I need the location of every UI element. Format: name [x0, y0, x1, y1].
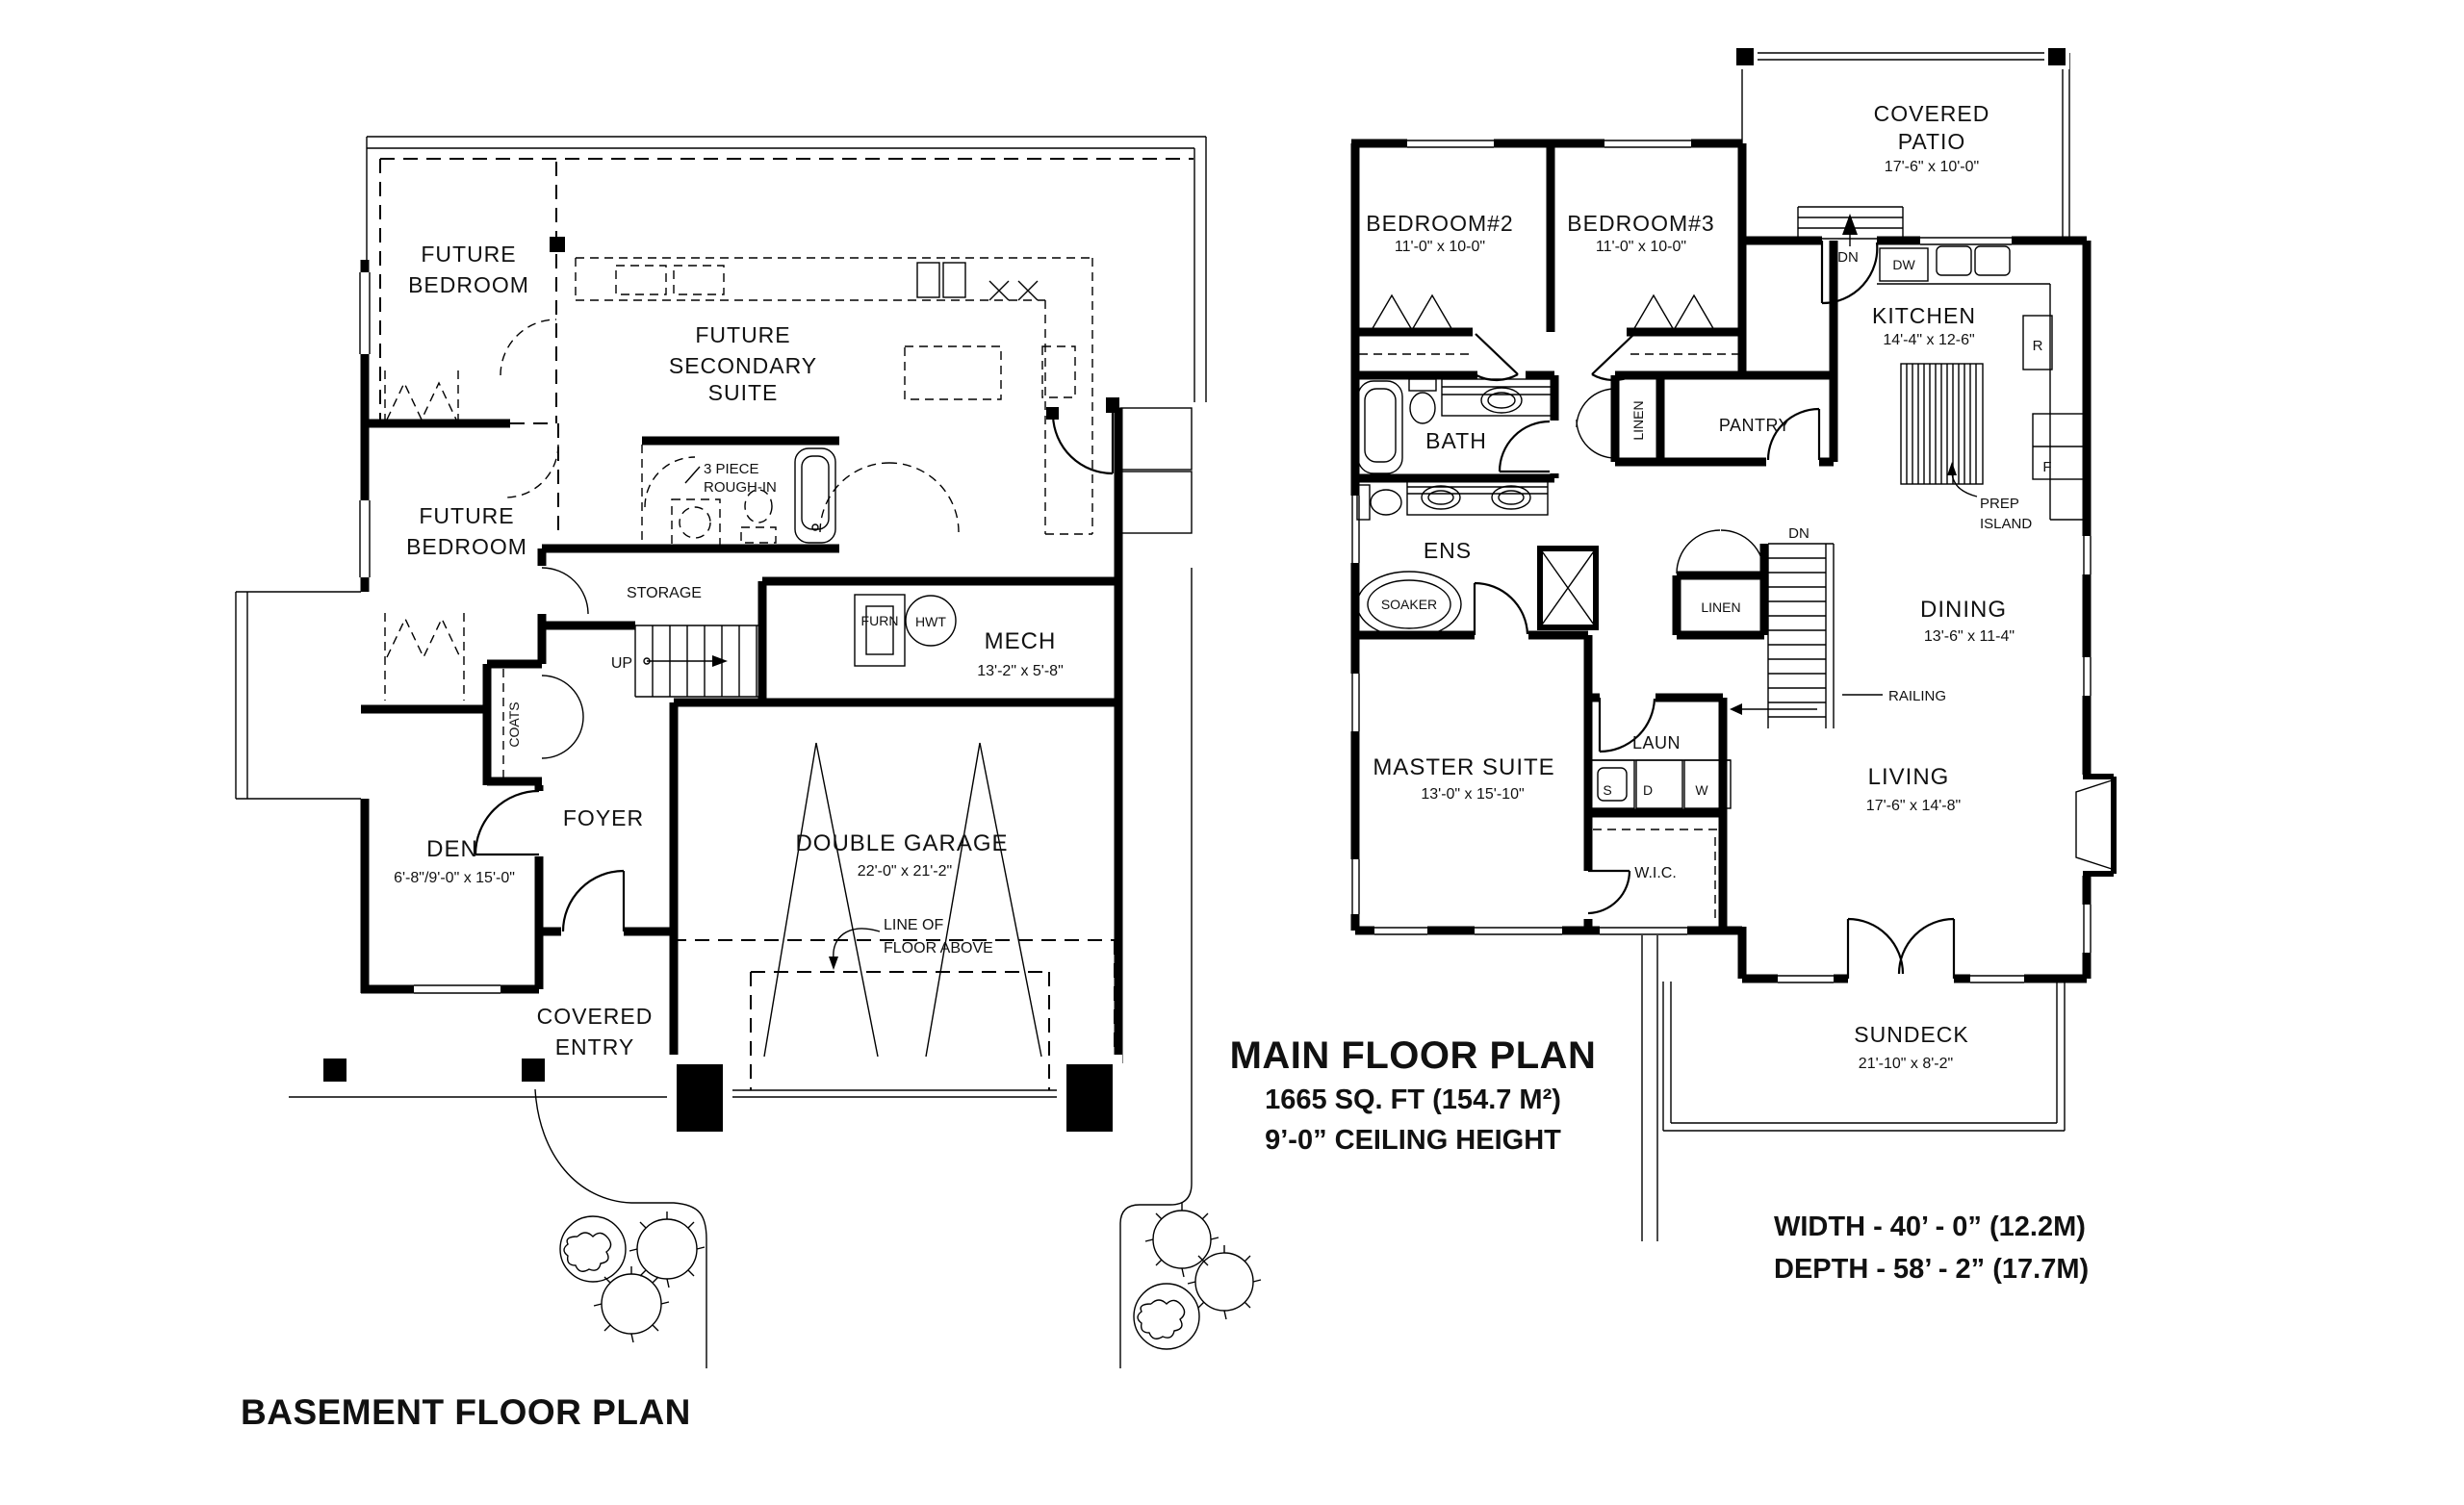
label-railing: RAILING: [1888, 688, 1946, 704]
label-dw: DW: [1892, 257, 1915, 272]
label-sundeck-dims: 21'-10" x 8'-2": [1859, 1056, 1953, 1072]
label-furn: FURN: [861, 613, 899, 628]
main-title-area: 1665 SQ. FT (154.7 M²): [1265, 1084, 1561, 1115]
label-bath: BATH: [1425, 428, 1487, 453]
floor-plan-drawing: FUTURE BEDROOM FUTURE SECONDARY SUITE 3 …: [0, 0, 2464, 1505]
bushes: [560, 1203, 1261, 1349]
label-sundeck: SUNDECK: [1854, 1022, 1968, 1047]
main-title-ceiling: 9’-0” CEILING HEIGHT: [1265, 1125, 1561, 1156]
label-foyer: FOYER: [563, 805, 644, 830]
basement-title: BASEMENT FLOOR PLAN: [241, 1392, 691, 1432]
label-hwt: HWT: [915, 614, 946, 629]
label-master: MASTER SUITE: [1373, 754, 1554, 780]
label-bedroom3: BEDROOM#3: [1567, 211, 1714, 236]
label-coats: COATS: [506, 701, 522, 747]
label-prep-island: PREP: [1980, 496, 2019, 512]
label-den: DEN: [426, 836, 478, 862]
label-future-bedroom1: FUTURE: [421, 242, 516, 267]
storage-door-arc: [542, 568, 588, 614]
label-garage-dims: 22'-0" x 21'-2": [858, 863, 952, 880]
label-linen-top: LINEN: [1630, 400, 1646, 440]
overall-width: WIDTH - 40’ - 0” (12.2M): [1774, 1212, 2086, 1242]
overall-depth: DEPTH - 58’ - 2” (17.7M): [1774, 1254, 2089, 1285]
bath-door: [1500, 421, 1550, 472]
label-fridge: F: [2042, 459, 2051, 475]
sink-rough-in: [680, 507, 710, 538]
mech-equipment: [855, 595, 956, 666]
label-kitchen-dims: 14'-4" x 12-6": [1883, 332, 1974, 348]
linen-top-doors: [1577, 389, 1615, 458]
main-floor-plan: BEDROOM#2 11'-0" x 10-0" BEDROOM#3 11'-0…: [1230, 44, 2114, 1285]
kitchen-sink: [1937, 246, 1971, 275]
label-dining: DINING: [1920, 597, 2007, 623]
front-door: [563, 871, 624, 931]
covered-entry: [289, 568, 1192, 1368]
label-dn-patio: DN: [1837, 249, 1859, 266]
label-rough-in: 3 PIECE: [704, 461, 759, 477]
label-dining-dims: 13'-6" x 11-4": [1924, 628, 2015, 645]
fireplace: [2076, 777, 2114, 874]
label-wic: W.I.C.: [1634, 865, 1677, 881]
label-sink-s: S: [1603, 782, 1611, 798]
label-prep-island-2: ISLAND: [1980, 516, 2032, 532]
label-future-bedroom2-2: BEDROOM: [406, 534, 527, 559]
linen-mid-doors: [1677, 530, 1764, 574]
label-soaker: SOAKER: [1381, 597, 1437, 612]
suite-side-door: [1053, 413, 1113, 473]
furnace: [855, 595, 905, 666]
label-kitchen: KITCHEN: [1872, 303, 1976, 328]
label-pantry: PANTRY: [1719, 416, 1790, 435]
label-bedroom3-dims: 11'-0" x 10-0": [1596, 239, 1686, 255]
label-linen-mid: LINEN: [1701, 599, 1740, 615]
label-living: LIVING: [1868, 764, 1950, 790]
bedroom2-door: [1476, 334, 1518, 380]
label-bedroom2-dims: 11'-0" x 10-0": [1395, 239, 1485, 255]
label-future-bedroom1-2: BEDROOM: [408, 272, 529, 297]
label-master-dims: 13'-0" x 15'-10": [1421, 786, 1524, 803]
label-future-suite: FUTURE: [695, 322, 790, 347]
basement-future-dashed: [380, 159, 1193, 701]
label-mech-dims: 13'-2" x 5'-8": [977, 663, 1064, 679]
basement-plan: FUTURE BEDROOM FUTURE SECONDARY SUITE 3 …: [236, 51, 1261, 1432]
wic-door: [1588, 871, 1630, 913]
den-bay-window: [236, 592, 361, 799]
sundeck-stairs: [1642, 935, 1657, 1241]
label-dn-stairs: DN: [1788, 525, 1809, 542]
floor-plan-page: FUTURE BEDROOM FUTURE SECONDARY SUITE 3 …: [0, 0, 2464, 1505]
kitchen-fixtures: [1877, 246, 2087, 520]
label-patio-dims: 17'-6" x 10'-0": [1885, 159, 1979, 175]
den-door: [475, 791, 539, 855]
label-future-bedroom2: FUTURE: [419, 503, 514, 528]
label-ens: ENS: [1424, 538, 1472, 563]
bath-toilet: [1409, 379, 1436, 391]
label-covered-patio-2: PATIO: [1898, 129, 1966, 154]
label-living-dims: 17'-6" x 14'-8": [1866, 798, 1961, 814]
french-doors: [1848, 919, 1954, 979]
garage-door: [731, 1090, 1059, 1097]
bath-vanity: [1442, 379, 1552, 416]
walkway-right: [1120, 568, 1192, 1368]
label-line-floor: LINE OF: [884, 917, 943, 933]
label-bedroom2: BEDROOM#2: [1366, 211, 1513, 236]
label-future-suite-2: SECONDARY: [669, 353, 817, 378]
label-dryer-d: D: [1643, 782, 1653, 798]
label-range: R: [2033, 338, 2043, 354]
label-covered-entry: COVERED: [537, 1004, 654, 1029]
label-up: UP: [611, 655, 632, 672]
label-future-suite-3: SUITE: [708, 380, 779, 405]
label-covered-patio: COVERED: [1874, 101, 1990, 126]
label-laun: LAUN: [1632, 733, 1681, 752]
master-door: [1475, 583, 1527, 635]
label-covered-entry-2: ENTRY: [555, 1034, 635, 1059]
main-title: MAIN FLOOR PLAN: [1230, 1034, 1597, 1077]
label-mech: MECH: [985, 628, 1057, 654]
label-rough-in-2: ROUGH-IN: [704, 479, 777, 496]
label-line-floor-2: FLOOR ABOVE: [884, 940, 993, 957]
label-den-dims: 6'-8"/9'-0" x 15'-0": [394, 870, 515, 886]
label-storage: STORAGE: [627, 585, 702, 601]
label-double-garage: DOUBLE GARAGE: [795, 830, 1008, 856]
garage-door-tracks: [764, 743, 1041, 1057]
label-washer-w: W: [1695, 782, 1708, 798]
